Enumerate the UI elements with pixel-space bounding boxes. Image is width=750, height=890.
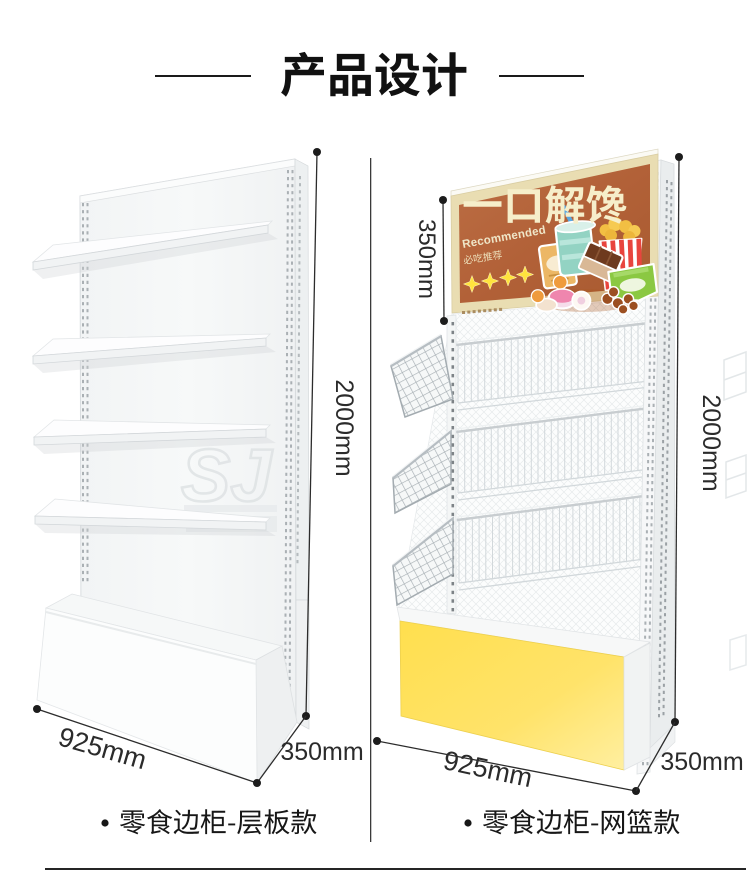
svg-text:350mm: 350mm (660, 748, 743, 776)
svg-text:2000mm: 2000mm (697, 394, 725, 491)
svg-text:350mm: 350mm (280, 738, 363, 766)
svg-text:2000mm: 2000mm (330, 379, 358, 476)
svg-text:350mm: 350mm (413, 219, 440, 299)
